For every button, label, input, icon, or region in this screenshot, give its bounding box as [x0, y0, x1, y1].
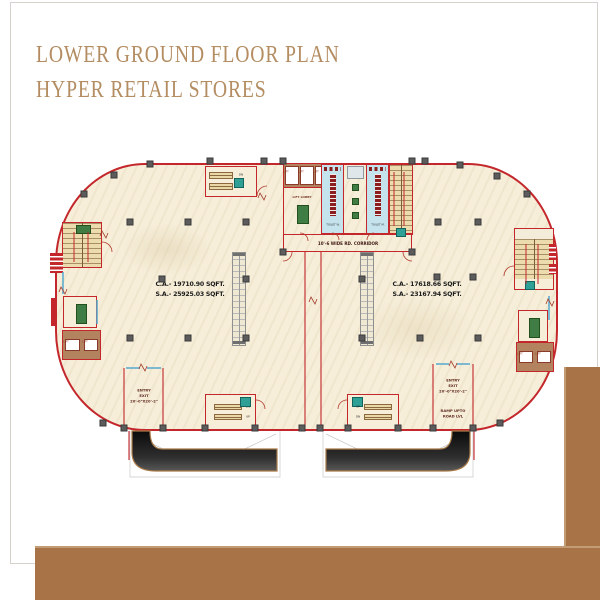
core-service-strip: [344, 164, 366, 234]
column: [395, 425, 402, 432]
lift-label: LIFT: [313, 170, 318, 173]
service-rug: [529, 318, 540, 338]
toilet-fixtures: [369, 167, 386, 171]
fire-riser: [549, 264, 556, 274]
service-rug: [76, 304, 87, 324]
column: [430, 425, 437, 432]
exit-sign: [240, 397, 251, 407]
staircase-right: [514, 228, 554, 290]
lift-cell: LIFT: [519, 351, 533, 363]
escalator-band: [364, 404, 392, 410]
lift-label: LIFT: [298, 170, 303, 173]
column: [417, 335, 424, 342]
column: [243, 276, 250, 283]
lift-cell: LIFT: [300, 166, 314, 185]
toilet-women: TOILET W.: [321, 164, 344, 234]
escalator-band: [214, 414, 242, 420]
lift-label: LIFT: [283, 170, 288, 173]
lift-lobby-label: LIFT LOBBY: [292, 195, 311, 199]
fire-riser: [50, 253, 63, 273]
toilet-m-label: TOILET M.: [371, 223, 384, 226]
left-unit-sa: S.A.- 25925.03 SQFT.: [155, 290, 224, 300]
exit-sign: [525, 281, 535, 290]
column: [470, 425, 477, 432]
column: [159, 276, 166, 283]
escalator-room-bottom-left: DN UP: [205, 394, 256, 429]
escalator-room-top: DN UP: [205, 166, 257, 197]
page-title-line2: HYPER RETAIL STORES: [36, 77, 267, 104]
column: [409, 158, 416, 165]
exit-sign: [234, 178, 244, 188]
exit-sign: [396, 228, 406, 237]
escalator-band: [209, 183, 233, 190]
travelator-right: [360, 252, 374, 346]
column: [160, 425, 167, 432]
ramp-line: ROAD LVL: [441, 414, 466, 420]
corridor: 10'-6 WIDE RD. CORRIDOR: [284, 234, 413, 252]
column: [261, 158, 268, 165]
entry-line: 20'-0"X20'-2": [439, 389, 467, 395]
lobby-rug: [297, 205, 309, 224]
entry-line: 20'-0"X20'-2": [130, 399, 158, 405]
column: [252, 425, 259, 432]
column: [435, 219, 442, 226]
lift-cell: LIFT: [65, 339, 80, 351]
column: [243, 335, 250, 342]
lift-label: LIFT: [535, 352, 540, 355]
column: [111, 172, 118, 179]
planter: [352, 184, 359, 191]
planter: [352, 198, 359, 205]
column: [202, 425, 209, 432]
stair-divider: [401, 165, 402, 233]
column: [207, 158, 214, 165]
column: [409, 249, 416, 256]
lift-label: LIFT: [63, 340, 68, 343]
column: [127, 219, 134, 226]
ramp-label: RAMP UPTO ROAD LVL: [441, 408, 466, 419]
column: [345, 425, 352, 432]
entry-exit-right: ENTRY EXIT 20'-0"X20'-2": [439, 378, 467, 395]
column: [470, 274, 477, 281]
column: [100, 420, 107, 427]
left-unit-ca: C.A.- 19710.90 SQFT.: [155, 280, 224, 290]
column: [280, 158, 287, 165]
right-unit-ca: C.A.- 17618.66 SQFT.: [392, 280, 461, 290]
column: [422, 158, 429, 165]
column: [457, 162, 464, 169]
escalator-band: [214, 404, 242, 410]
escalator-band: [209, 172, 233, 179]
corridor-label: 10'-6 WIDE RD. CORRIDOR: [318, 242, 378, 247]
duct: [347, 166, 364, 179]
planter: [352, 212, 359, 219]
stair-flight: [515, 239, 553, 279]
lift-label: LIFT: [82, 340, 87, 343]
escalator-room-bottom-right: UP DN: [347, 394, 399, 429]
escalator-up-label: UP: [356, 405, 360, 408]
right-unit-area: C.A.- 17618.66 SQFT. S.A.- 23167.94 SQFT…: [392, 280, 461, 300]
fire-riser: [549, 244, 556, 260]
stair-sign: [76, 225, 91, 234]
staircase-left: [62, 222, 102, 268]
column: [185, 335, 192, 342]
lift-cell: LIFT: [537, 351, 551, 363]
page: LOWER GROUND FLOOR PLAN HYPER RETAIL STO…: [0, 0, 600, 600]
column: [475, 219, 482, 226]
stair-divider: [534, 239, 535, 279]
toilet-w-label: TOILET W.: [326, 223, 340, 226]
lift-lobby: LIFT LOBBY: [284, 187, 322, 234]
page-title-line1: LOWER GROUND FLOOR PLAN: [36, 42, 340, 69]
column: [299, 425, 306, 432]
column: [81, 191, 88, 198]
column: [494, 173, 501, 180]
column: [524, 191, 531, 198]
brown-frame-bottom: [35, 546, 600, 600]
fire-shaft: [51, 298, 57, 326]
column: [317, 425, 324, 432]
service-room-left: [63, 296, 97, 328]
escalator-dn-label: DN: [356, 415, 360, 418]
lift-bank: LIFT LIFT LIFT LIFT: [284, 164, 321, 188]
lift-pair-right: LIFT LIFT: [516, 342, 554, 372]
column: [475, 335, 482, 342]
lift-label: LIFT: [517, 352, 522, 355]
toilet-fixtures: [324, 167, 341, 171]
lift-pair-left: LIFT LIFT: [62, 330, 101, 360]
lift-cell: LIFT: [285, 166, 299, 185]
column: [243, 219, 250, 226]
toilet-men: TOILET M.: [366, 164, 389, 234]
column: [127, 335, 134, 342]
column: [434, 274, 441, 281]
column: [147, 161, 154, 168]
toilet-stalls: [375, 174, 381, 216]
right-unit-sa: S.A.- 23167.94 SQFT.: [392, 290, 461, 300]
toilet-stalls: [330, 174, 336, 216]
column: [359, 335, 366, 342]
column: [359, 276, 366, 283]
escalator-up-label: UP: [246, 415, 250, 418]
entry-exit-left: ENTRY EXIT 20'-0"X20'-2": [130, 388, 158, 405]
core-block: LIFT LIFT LIFT LIFT LIFT LOBBY TOILET W.: [283, 164, 412, 252]
column: [280, 249, 287, 256]
travelator-left: [232, 252, 246, 346]
escalator-band: [364, 414, 392, 420]
column: [185, 219, 192, 226]
service-room-right: [518, 310, 548, 342]
escalator-dn-label: DN: [239, 173, 243, 176]
column: [497, 420, 504, 427]
column: [121, 425, 128, 432]
lift-cell: LIFT: [84, 339, 99, 351]
left-unit-area: C.A.- 19710.90 SQFT. S.A.- 25925.03 SQFT…: [155, 280, 224, 300]
core-staircase: [389, 164, 413, 234]
